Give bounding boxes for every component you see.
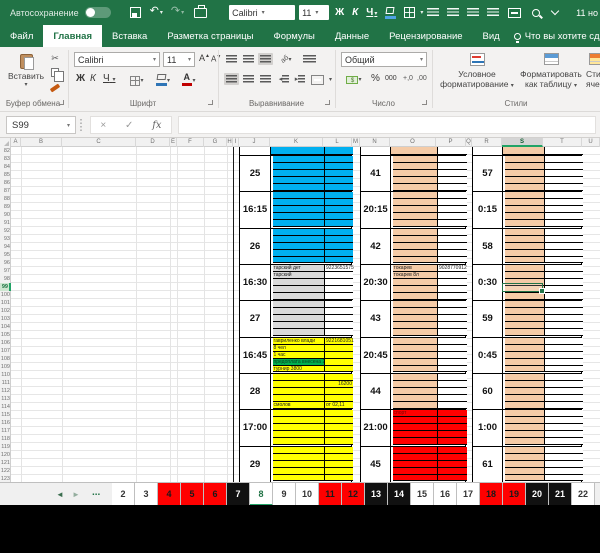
slot-label[interactable]: 43 [361,301,391,336]
schedule-cell[interactable] [437,359,467,366]
row-header-117[interactable]: 117 [0,427,11,435]
schedule-cell[interactable] [505,438,545,445]
alignment-dialog-launcher-icon[interactable] [325,100,330,105]
schedule-cell[interactable] [273,417,325,424]
schedule-cell[interactable] [273,243,325,250]
schedule-cell[interactable] [437,184,467,191]
schedule-cell[interactable] [393,431,438,438]
schedule-cell[interactable]: токарев [393,265,438,272]
schedule-cell[interactable] [324,177,353,184]
sheet-tab-6[interactable]: 6 [204,483,227,506]
schedule-cell[interactable] [273,286,325,293]
schedule-cell[interactable] [544,206,583,213]
quick-italic-button[interactable]: К [352,7,358,18]
slot-label[interactable]: 16:30 [240,265,271,300]
schedule-cell[interactable] [437,417,467,424]
schedule-cell[interactable] [324,308,353,315]
row-header-102[interactable]: 102 [0,307,11,315]
schedule-cell[interactable] [324,315,353,322]
row-header-94[interactable]: 94 [0,243,11,251]
schedule-cell[interactable] [544,322,583,329]
schedule-cell[interactable] [273,395,325,402]
schedule-cell[interactable] [505,206,545,213]
schedule-cell[interactable] [324,229,353,236]
schedule-cell[interactable] [505,475,545,482]
borders-button[interactable]: ▾ [126,74,148,87]
row-header-84[interactable]: 84 [0,163,11,171]
shrink-font-button[interactable]: А▼ [211,54,221,64]
schedule-cell[interactable] [437,424,467,431]
schedule-cell[interactable] [273,250,325,257]
schedule-cell[interactable] [544,184,583,191]
schedule-cell[interactable]: тарский дет [273,265,325,272]
row-header-106[interactable]: 106 [0,339,11,347]
schedule-cell[interactable] [437,366,467,373]
sheet-tab-12[interactable]: 12 [342,483,365,506]
slot-label[interactable]: 58 [473,229,503,264]
decrease-decimal-button[interactable]: ,00 [417,75,427,82]
row-header-91[interactable]: 91 [0,219,11,227]
slot-label[interactable]: 41 [361,156,391,191]
schedule-cell[interactable] [437,438,467,445]
schedule-cell[interactable] [544,381,583,388]
schedule-cell[interactable] [393,338,438,345]
schedule-cell[interactable] [324,213,353,220]
schedule-cell[interactable] [505,184,545,191]
schedule-cell[interactable] [324,286,353,293]
schedule-cell[interactable] [393,213,438,220]
row-header-99[interactable]: 99 [0,283,11,291]
font-size-combo[interactable]: 11▾ [163,52,195,67]
schedule-cell[interactable] [544,338,583,345]
schedule-cell[interactable] [393,329,438,336]
schedule-cell[interactable] [393,475,438,482]
schedule-cell[interactable] [544,402,583,409]
schedule-cell[interactable] [324,366,353,373]
sheet-tab-17[interactable]: 17 [457,483,480,506]
worksheet-grid[interactable]: ABCDEFGHIJKLMNOPQRSTU 828384858687888990… [0,138,600,482]
column-header-K[interactable]: K [270,138,323,147]
schedule-cell[interactable] [505,395,545,402]
schedule-cell[interactable]: турнир 3800 [273,366,325,373]
schedule-cell[interactable]: 16200 [324,381,353,388]
schedule-cell[interactable] [544,257,583,264]
schedule-cell[interactable] [505,308,545,315]
row-header-110[interactable]: 110 [0,371,11,379]
schedule-cell[interactable] [544,388,583,395]
schedule-cell[interactable] [324,417,353,424]
ribbon-tab-Рецензирование[interactable]: Рецензирование [379,25,472,47]
number-format-combo[interactable]: Общий▾ [341,52,427,67]
schedule-cell[interactable] [393,359,438,366]
row-header-113[interactable]: 113 [0,395,11,403]
schedule-cell[interactable] [544,272,583,279]
schedule-cell[interactable] [273,461,325,468]
schedule-cell[interactable] [437,402,467,409]
schedule-cell[interactable] [505,199,545,206]
schedule-cell[interactable] [273,236,325,243]
sheet-tab-4[interactable]: 4 [158,483,181,506]
schedule-cell[interactable] [324,410,353,417]
schedule-cell[interactable] [273,454,325,461]
schedule-cell[interactable] [544,431,583,438]
schedule-cell[interactable] [393,243,438,250]
schedule-cell[interactable] [544,293,583,300]
schedule-cell[interactable] [393,374,438,381]
sheet-tab-2[interactable]: 2 [112,483,135,506]
schedule-cell[interactable] [544,243,583,250]
schedule-cell[interactable] [544,461,583,468]
schedule-cell[interactable] [505,236,545,243]
schedule-cell[interactable] [544,352,583,359]
schedule-cell[interactable] [544,447,583,454]
orientation-button[interactable]: аб▾ [278,52,294,66]
schedule-cell[interactable] [505,265,545,272]
schedule-cell[interactable] [393,461,438,468]
font-name-combo[interactable]: Calibri▾ [74,52,160,67]
schedule-cell[interactable] [544,220,583,227]
row-header-92[interactable]: 92 [0,227,11,235]
schedule-cell[interactable] [393,402,438,409]
schedule-cell[interactable] [437,163,467,170]
schedule-cell[interactable]: смолов [273,402,325,409]
sheet-tab-7[interactable]: 7 [227,483,250,506]
font-color-button[interactable]: А ▾ [178,73,200,87]
row-header-122[interactable]: 122 [0,467,11,475]
schedule-cell[interactable] [437,272,467,279]
schedule-cell[interactable] [437,206,467,213]
schedule-cell[interactable] [393,286,438,293]
schedule-cell[interactable] [505,447,545,454]
schedule-cell[interactable] [437,447,467,454]
schedule-cell[interactable] [273,315,325,322]
schedule-cell[interactable] [437,352,467,359]
empty-cells-region[interactable] [11,147,233,482]
schedule-cell[interactable] [544,163,583,170]
schedule-cell[interactable] [273,475,325,482]
schedule-cell[interactable] [393,220,438,227]
schedule-cell[interactable] [273,308,325,315]
sheet-tab-10[interactable]: 10 [296,483,319,506]
sheet-tab-5[interactable]: 5 [181,483,204,506]
row-header-96[interactable]: 96 [0,259,11,267]
sheet-tab-21[interactable]: 21 [549,483,572,506]
schedule-cell[interactable] [393,468,438,475]
ribbon-tab-Главная[interactable]: Главная [43,25,102,47]
row-header-87[interactable]: 87 [0,187,11,195]
schedule-cell[interactable] [393,395,438,402]
schedule-cell[interactable] [437,329,467,336]
row-header-123[interactable]: 123 [0,475,11,482]
clipboard-dialog-launcher-icon[interactable] [59,100,64,105]
bold-button[interactable]: Ж [76,73,85,84]
fill-color-button[interactable]: ▾ [152,73,174,87]
row-header-101[interactable]: 101 [0,299,11,307]
row-header-109[interactable]: 109 [0,363,11,371]
schedule-cell[interactable] [437,192,467,199]
schedule-cell[interactable] [505,156,545,163]
paste-button[interactable]: Вставить ▾ [8,51,44,91]
schedule-cell[interactable] [505,177,545,184]
schedule-cell[interactable] [505,329,545,336]
schedule-cell[interactable] [544,329,583,336]
schedule-cell[interactable] [437,293,467,300]
schedule-cell[interactable] [505,454,545,461]
column-header-A[interactable]: A [11,138,21,147]
schedule-cell[interactable] [437,279,467,286]
select-all-corner[interactable] [0,138,11,147]
row-header-111[interactable]: 111 [0,379,11,387]
schedule-cell[interactable] [437,236,467,243]
quick-align-right-icon[interactable] [467,8,479,17]
schedule-cell[interactable] [505,381,545,388]
schedule-cell[interactable] [273,156,325,163]
column-header-E[interactable]: E [170,138,177,147]
slot-label[interactable]: 1:00 [473,410,503,445]
schedule-cell[interactable] [324,454,353,461]
schedule-cell[interactable] [437,345,467,352]
schedule-cell[interactable] [273,199,325,206]
schedule-cell[interactable] [505,192,545,199]
quick-justify-icon[interactable] [487,8,499,17]
schedule-cell[interactable] [437,431,467,438]
schedule-cell[interactable] [393,156,438,163]
schedule-cell[interactable] [393,345,438,352]
row-header-95[interactable]: 95 [0,251,11,259]
schedule-cell[interactable] [544,410,583,417]
schedule-cell[interactable] [437,213,467,220]
schedule-cell[interactable] [544,359,583,366]
schedule-cell[interactable]: предоплата внесена 2000 [273,359,325,366]
schedule-cell[interactable] [273,381,325,388]
sheet-tab-20[interactable]: 20 [526,483,549,506]
schedule-cell[interactable] [273,192,325,199]
slot-label[interactable]: 0:30 [473,265,503,300]
column-header-O[interactable]: O [390,138,436,147]
schedule-cell[interactable] [273,177,325,184]
row-header-119[interactable]: 119 [0,443,11,451]
quick-size-combo[interactable]: 11▾ [299,5,329,20]
redo-icon[interactable]: ↷▾ [171,0,184,26]
row-header-120[interactable]: 120 [0,451,11,459]
schedule-cell[interactable] [324,206,353,213]
schedule-cell[interactable]: 9221681051 [324,338,353,345]
quick-underline-button[interactable]: Ч▾ [366,7,377,18]
schedule-cell[interactable] [437,177,467,184]
schedule-cell[interactable] [393,301,438,308]
schedule-cell[interactable] [437,381,467,388]
schedule-cell[interactable] [505,338,545,345]
ribbon-tab-Разметка страницы[interactable]: Разметка страницы [157,25,263,47]
schedule-cell[interactable] [544,438,583,445]
schedule-cell[interactable] [505,322,545,329]
schedule-cell[interactable] [544,374,583,381]
schedule-cell[interactable] [324,468,353,475]
slot-label[interactable]: 20:15 [361,192,391,227]
sheet-tab-11[interactable]: 11 [319,483,342,506]
column-header-G[interactable]: G [204,138,227,147]
schedule-cell[interactable] [437,220,467,227]
schedule-cell[interactable] [324,293,353,300]
slot-label[interactable]: 27 [240,301,271,336]
schedule-cell[interactable] [324,374,353,381]
schedule-cell[interactable] [273,163,325,170]
column-header-D[interactable]: D [136,138,170,147]
schedule-cell[interactable] [505,417,545,424]
empty-cells-region[interactable] [582,147,600,482]
schedule-cell[interactable]: спорт [393,410,438,417]
slot-label[interactable]: 59 [473,301,503,336]
schedule-cell[interactable] [393,229,438,236]
row-header-93[interactable]: 93 [0,235,11,243]
undo-icon[interactable]: ↶▾ [150,0,163,26]
align-center-button[interactable] [241,73,256,85]
column-header-J[interactable]: J [239,138,270,147]
schedule-cell[interactable] [324,301,353,308]
column-header-B[interactable]: B [21,138,62,147]
schedule-cell[interactable] [393,438,438,445]
schedule-cell[interactable] [437,170,467,177]
quick-bold-button[interactable]: Ж [335,7,344,18]
schedule-cell[interactable] [324,236,353,243]
schedule-cell[interactable] [437,475,467,482]
schedule-cell[interactable] [324,345,353,352]
row-header-86[interactable]: 86 [0,179,11,187]
schedule-cell[interactable] [324,220,353,227]
slot-label[interactable]: 61 [473,447,503,482]
schedule-cell[interactable] [273,170,325,177]
schedule-cell[interactable] [437,338,467,345]
schedule-cell[interactable] [437,395,467,402]
row-header-112[interactable]: 112 [0,387,11,395]
schedule-cell[interactable] [393,447,438,454]
schedule-cell[interactable] [393,236,438,243]
slot-label[interactable]: 29 [240,447,271,482]
schedule-cell[interactable] [393,454,438,461]
quick-borders-icon[interactable] [404,7,415,18]
schedule-cell[interactable] [505,352,545,359]
format-as-table-button[interactable]: Форматироватькак таблицу ▾ [518,69,584,91]
sheet-tab-19[interactable]: 19 [503,483,526,506]
schedule-cell[interactable] [505,431,545,438]
schedule-cell[interactable] [393,170,438,177]
schedule-cell[interactable] [324,461,353,468]
tell-me-box[interactable]: Что вы хотите сделать? [514,25,600,47]
schedule-cell[interactable] [505,293,545,300]
increase-decimal-button[interactable]: +,0 [403,75,413,82]
schedule-cell[interactable] [324,322,353,329]
schedule-cell[interactable] [544,286,583,293]
row-header-121[interactable]: 121 [0,459,11,467]
schedule-cell[interactable] [273,279,325,286]
enter-button[interactable]: ✓ [125,120,133,131]
schedule-cell[interactable] [544,250,583,257]
slot-label[interactable]: 0:45 [473,338,503,373]
conditional-formatting-button[interactable]: Условноеформатирование ▾ [438,69,516,91]
slot-label[interactable]: 57 [473,156,503,191]
quick-font-combo[interactable]: Calibri▾ [229,5,295,20]
schedule-cell[interactable] [324,475,353,482]
schedule-cell[interactable] [273,424,325,431]
schedule-cell[interactable] [437,454,467,461]
schedule-cell[interactable] [273,447,325,454]
schedule-cell[interactable] [544,475,583,482]
save-icon[interactable] [130,7,141,18]
schedule-cell[interactable] [437,461,467,468]
schedule-cell[interactable] [505,301,545,308]
schedule-cell[interactable] [393,322,438,329]
schedule-cell[interactable] [393,315,438,322]
copy-button[interactable] [47,66,63,79]
column-header-S[interactable]: S [502,138,543,147]
schedule-cell[interactable] [437,388,467,395]
schedule-cell[interactable] [437,286,467,293]
comma-style-button[interactable]: 000 [385,75,397,82]
schedule-cell[interactable] [393,293,438,300]
schedule-cell[interactable] [393,366,438,373]
schedule-cell[interactable] [505,402,545,409]
column-header-M[interactable]: M [352,138,360,147]
schedule-cell[interactable] [273,431,325,438]
schedule-cell[interactable] [544,170,583,177]
schedule-cell[interactable] [544,417,583,424]
slot-label[interactable]: 0:15 [473,192,503,227]
schedule-cell[interactable] [505,163,545,170]
column-header-P[interactable]: P [436,138,466,147]
slot-label[interactable]: 45 [361,447,391,482]
schedule-cell[interactable] [544,177,583,184]
accounting-format-button[interactable]: $ ▾ [342,73,366,86]
schedule-cell[interactable] [505,461,545,468]
format-painter-button[interactable] [47,82,63,94]
schedule-cell[interactable] [544,229,583,236]
slot-label[interactable]: 42 [361,229,391,264]
schedule-cell[interactable] [505,410,545,417]
schedule-cell[interactable] [273,293,325,300]
schedule-cell[interactable]: токарев 8л [393,272,438,279]
row-header-98[interactable]: 98 [0,275,11,283]
schedule-cell[interactable] [393,388,438,395]
slot-label[interactable]: 26 [240,229,271,264]
sheet-tab-3[interactable]: 3 [135,483,158,506]
sheet-tab-15[interactable]: 15 [411,483,434,506]
row-header-97[interactable]: 97 [0,267,11,275]
formula-input[interactable] [178,116,596,134]
cell-styles-button[interactable]: Стиячее [586,69,600,89]
align-bottom-button[interactable] [258,53,273,65]
schedule-cell[interactable] [324,184,353,191]
schedule-cell[interactable] [393,381,438,388]
row-header-100[interactable]: 100 [0,291,11,299]
ribbon-tab-Файл[interactable]: Файл [0,25,43,47]
schedule-cell[interactable] [437,468,467,475]
percent-style-button[interactable]: % [371,73,380,84]
grow-font-button[interactable]: А▲ [199,53,210,63]
row-header-83[interactable]: 83 [0,155,11,163]
column-header-F[interactable]: F [177,138,204,147]
schedule-cell[interactable]: 1 час [273,352,325,359]
schedule-cell[interactable] [273,468,325,475]
schedule-cell[interactable] [544,301,583,308]
schedule-cell[interactable] [437,301,467,308]
schedule-cell[interactable] [273,257,325,264]
schedule-cell[interactable]: гавриленко влади [273,338,325,345]
sheet-tab-14[interactable]: 14 [388,483,411,506]
schedule-cell[interactable] [324,279,353,286]
slot-label[interactable]: 16:45 [240,338,271,373]
sheet-tab-22[interactable]: 22 [572,483,595,506]
schedule-cell[interactable] [393,206,438,213]
